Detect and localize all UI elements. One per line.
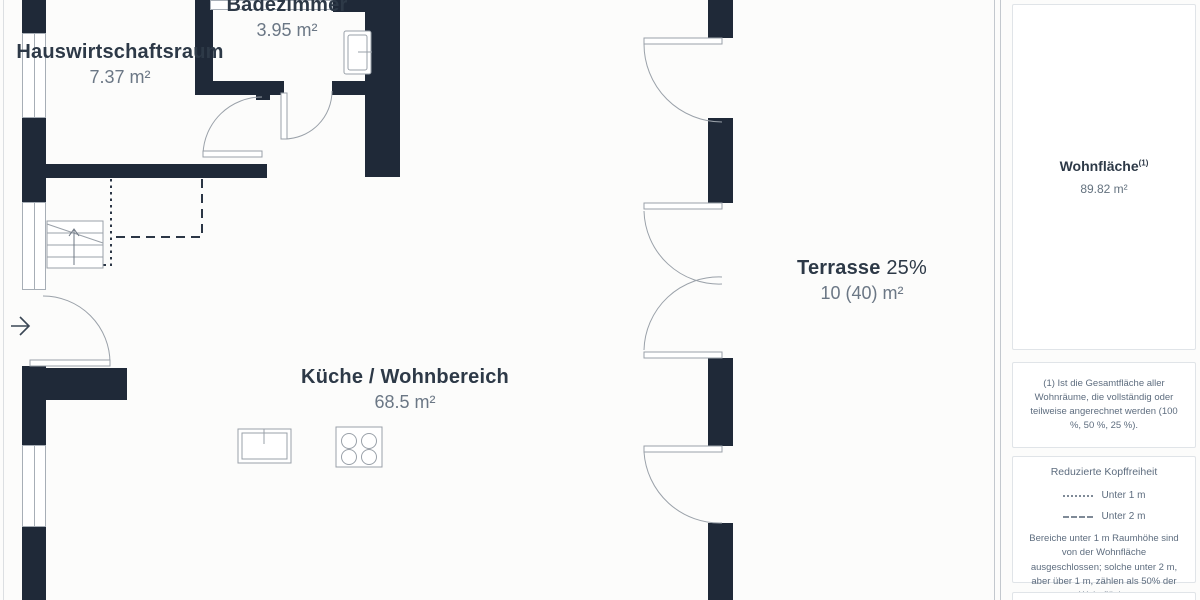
window-stairs — [22, 202, 46, 290]
room-label-terrasse: Terrasse 25% 10 (40) m² — [797, 257, 927, 304]
staircase — [47, 221, 103, 268]
headroom-under-2m-line — [111, 179, 202, 237]
room-label-kueche-wohnbereich: Küche / Wohnbereich 68.5 m² — [301, 366, 509, 413]
room-area: 7.37 m² — [16, 67, 223, 88]
window-living — [22, 445, 46, 527]
room-name: Hauswirtschaftsraum — [16, 41, 223, 64]
footnote-marker: (1) — [1139, 158, 1149, 167]
wall-left-top — [22, 0, 46, 33]
legend-label: Unter 1 m — [1102, 490, 1146, 501]
legend-item-under-2m: Unter 2 m — [1026, 506, 1182, 527]
living-area-summary-card: Wohnfläche(1) 89.82 m² — [1012, 4, 1196, 350]
next-card-cut-off — [1012, 592, 1196, 600]
wall-bath-bottom-right — [332, 81, 365, 95]
dotted-line-icon — [1063, 495, 1093, 497]
wall-terrace-2 — [708, 118, 733, 203]
terrace-edge-line-inner — [1000, 0, 1001, 600]
terrace-french-door — [644, 203, 722, 358]
room-name: Terrasse 25% — [797, 257, 927, 280]
room-label-badezimmer: Badezimmer 3.95 m² — [227, 0, 348, 41]
info-sidebar: Wohnfläche(1) 89.82 m² (1) Ist die Gesam… — [1008, 0, 1200, 600]
living-area-title: Wohnfläche(1) — [1060, 158, 1149, 174]
room-area: 68.5 m² — [301, 392, 509, 413]
dashed-line-icon — [1063, 516, 1093, 518]
living-area-value: 89.82 m² — [1080, 182, 1127, 196]
legend-note: Bereiche unter 1 m Raumhöhe sind von der… — [1026, 532, 1182, 600]
wall-entry-block — [22, 368, 127, 400]
terrace-door-2 — [644, 446, 722, 523]
wall-left-bottom — [22, 527, 46, 600]
floor-plan-viewer: Badezimmer 3.95 m² Hauswirtschaftsraum 7… — [0, 0, 1200, 600]
room-name: Badezimmer — [227, 0, 348, 17]
terrace-percent: 25% — [886, 257, 927, 279]
entry-arrow-icon — [11, 317, 29, 335]
terrace-door-1 — [644, 38, 722, 122]
bath-door — [281, 91, 332, 139]
footnote-text: (1) Ist die Gesamtfläche aller Wohnräume… — [1026, 377, 1182, 434]
hwr-door — [203, 97, 262, 157]
wall-left-mid — [22, 118, 46, 202]
footnote-card: (1) Ist die Gesamtfläche aller Wohnräume… — [1012, 362, 1196, 448]
legend-item-under-1m: Unter 1 m — [1026, 485, 1182, 506]
headroom-legend-card: Reduzierte Kopffreiheit Unter 1 m Unter … — [1012, 456, 1196, 583]
wall-door-stub — [256, 93, 270, 100]
terrace-edge-line-outer — [994, 0, 995, 600]
legend-label: Unter 2 m — [1102, 511, 1146, 522]
plan-left-boundary-line — [3, 0, 4, 600]
room-label-hauswirtschaftsraum: Hauswirtschaftsraum 7.37 m² — [16, 41, 223, 88]
headroom-under-1m-line — [102, 179, 111, 265]
wall-bath-right — [365, 0, 400, 177]
wall-terrace-1 — [708, 0, 733, 38]
legend-title: Reduzierte Kopffreiheit — [1026, 466, 1182, 478]
entry-door — [30, 296, 110, 366]
room-area: 3.95 m² — [227, 20, 348, 41]
sink-icon — [238, 429, 291, 463]
wall-terrace-3 — [708, 358, 733, 446]
stove-icon — [336, 427, 382, 467]
wall-hwr-bottom — [46, 164, 267, 178]
room-area: 10 (40) m² — [797, 283, 927, 304]
room-name: Küche / Wohnbereich — [301, 366, 509, 389]
wall-terrace-4 — [708, 523, 733, 600]
